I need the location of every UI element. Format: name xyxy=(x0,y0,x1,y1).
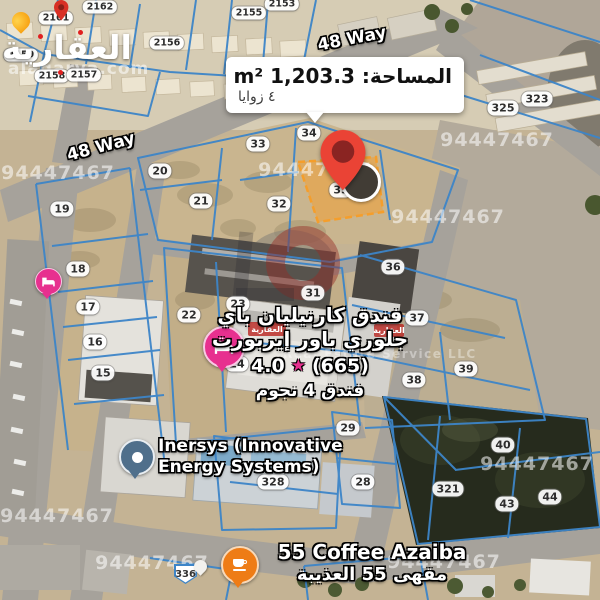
hotel-pin-tail xyxy=(216,364,228,372)
area-info-box: المساحة: m² 1,203.3 ٤ زوايا xyxy=(226,57,464,113)
brand-accent-dot xyxy=(58,70,63,75)
brand-name: العقارية xyxy=(2,28,132,67)
bed-icon xyxy=(213,340,235,355)
hotel-pin-small-icon[interactable] xyxy=(35,268,62,295)
road-label-48-way: 48 Way xyxy=(316,23,388,56)
coffee-pin-tail xyxy=(232,580,244,588)
info-box-tail xyxy=(306,112,324,123)
bed-icon xyxy=(41,277,56,287)
road-label-48-way: 48 Way xyxy=(65,128,138,165)
brand-accent-dot xyxy=(78,30,83,35)
pin-dot xyxy=(132,452,143,463)
selected-plot-pin-icon[interactable] xyxy=(320,130,366,190)
inersys-pin-tail xyxy=(129,471,141,479)
coffee-cup-icon xyxy=(233,559,248,571)
hotel-pin-icon[interactable] xyxy=(203,326,245,368)
brand-logo: العقارية xyxy=(0,12,150,82)
coffee-pin-icon[interactable] xyxy=(221,546,259,584)
map-canvas[interactable]: 9444746794447467944474679444746794447467… xyxy=(0,0,600,600)
brand-accent-dot xyxy=(38,34,43,39)
corners-value: ٤ زوايا xyxy=(238,89,452,105)
hotel-pin-small-tail xyxy=(42,293,52,299)
inersys-pin-icon[interactable] xyxy=(119,439,155,475)
area-value: المساحة: m² 1,203.3 xyxy=(238,64,452,88)
